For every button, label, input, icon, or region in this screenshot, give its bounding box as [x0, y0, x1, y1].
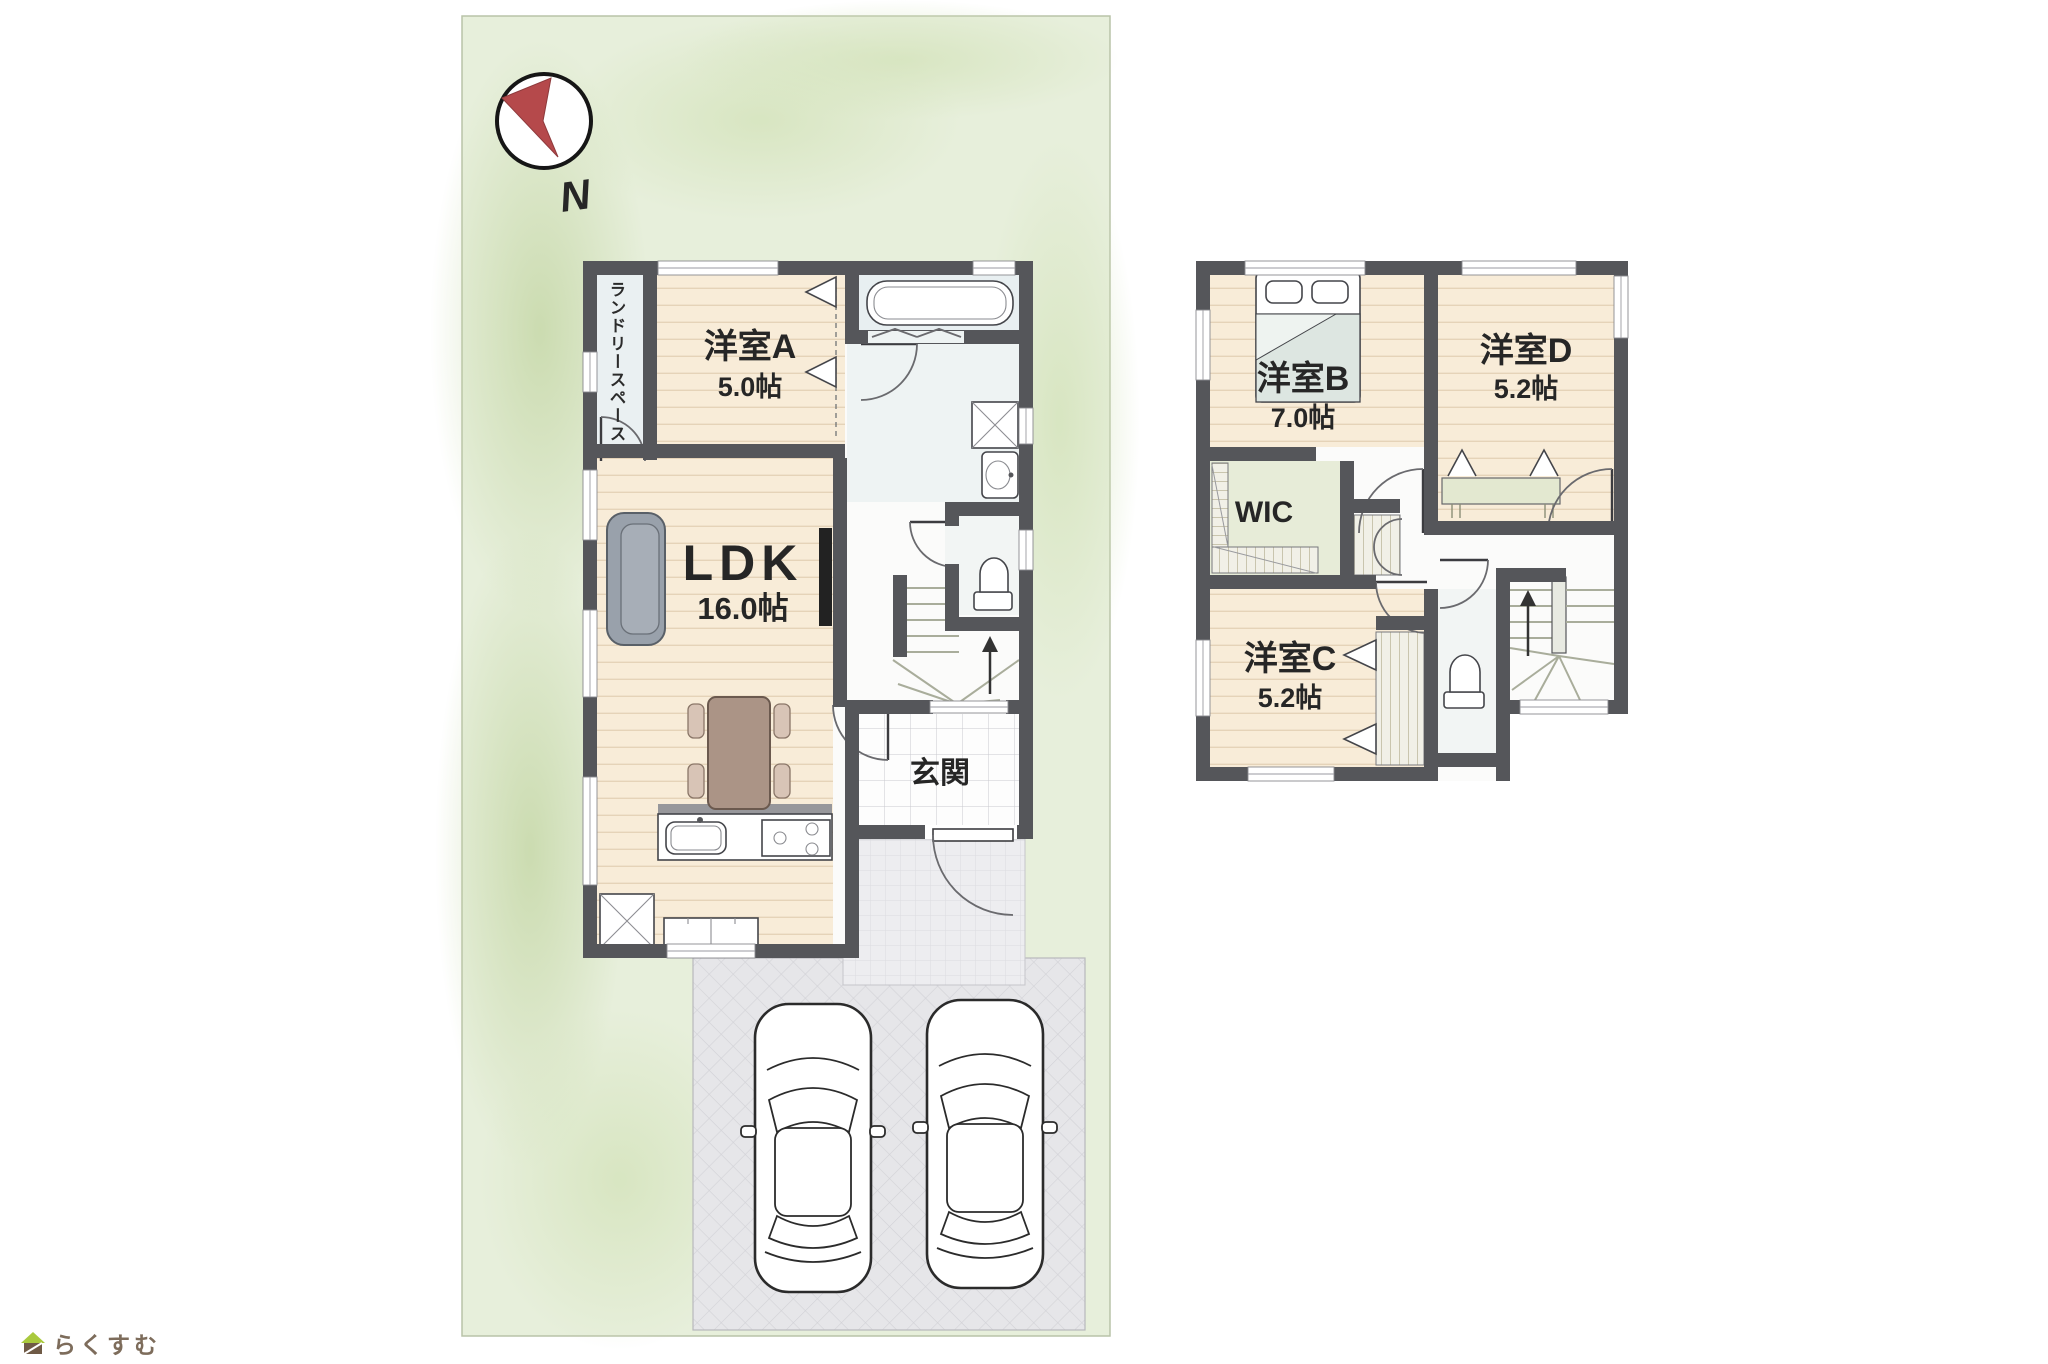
room-d-size: 5.2帖 [1494, 374, 1559, 404]
logo-text: らくすむ [53, 1326, 161, 1360]
floorplan-canvas: 洋室A 5.0帖 LDK 16.0帖 玄関 [0, 0, 2048, 1364]
bathtub-icon [867, 281, 1013, 325]
entrance-porch [843, 839, 1025, 985]
ldk-size: 16.0帖 [697, 591, 788, 626]
car-icon [913, 1000, 1057, 1288]
house-icon [20, 1330, 46, 1356]
washing-machine-icon [972, 402, 1018, 448]
washbasin-icon [982, 452, 1018, 498]
room-a-size: 5.0帖 [718, 372, 783, 402]
fridge-space-icon [600, 894, 654, 948]
sofa-icon [607, 513, 665, 645]
room-b-label: 洋室B [1257, 359, 1350, 398]
floorplan-drawing: 洋室A 5.0帖 LDK 16.0帖 玄関 [0, 0, 2048, 1364]
room-b-size: 7.0帖 [1271, 403, 1336, 433]
wic-label: WIC [1235, 496, 1293, 529]
tv-icon [819, 528, 832, 626]
ldk-label: LDK [683, 535, 804, 591]
room-a-label: 洋室A [704, 327, 797, 366]
hall-closet [1354, 515, 1402, 575]
room-c-size: 5.2帖 [1258, 683, 1323, 713]
kitchen-cabinet [664, 918, 758, 948]
laundry-label: ランドリースペース [604, 281, 628, 443]
genkan-label: 玄関 [910, 756, 970, 790]
floor2-plan: 洋室B 7.0帖 洋室D 5.2帖 WIC 洋室C 5.2帖 [1196, 261, 1628, 781]
room-c-label: 洋室C [1244, 639, 1337, 678]
car-icon [741, 1004, 885, 1292]
room-d-label: 洋室D [1480, 331, 1573, 370]
logo: らくすむ [20, 1326, 161, 1360]
kitchen-icon [658, 804, 832, 860]
